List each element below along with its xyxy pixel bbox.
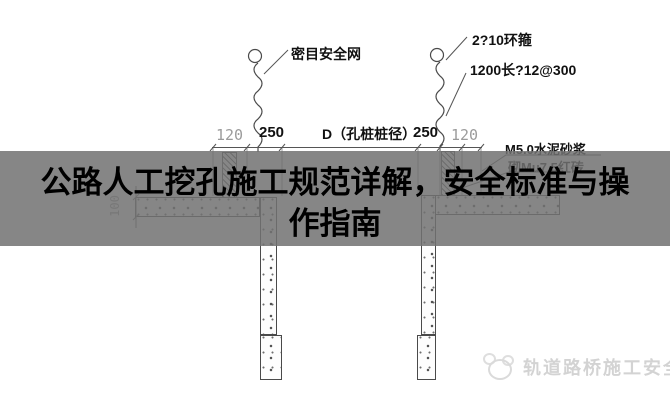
watermark: 轨道路桥施工安全: [481, 352, 670, 382]
hoop-circle-right: [431, 49, 444, 62]
label-rebar: 1200长?12@300: [470, 60, 576, 80]
logo-head: [488, 359, 512, 380]
label-ring-hoop: 2?10环箍: [472, 30, 532, 50]
label-safety-net: 密目安全网: [291, 44, 361, 64]
leader-rebar: [446, 73, 466, 116]
hoop-circle-left: [249, 50, 262, 63]
watermark-text: 轨道路桥施工安全: [523, 354, 670, 380]
dimension-250-right: 250: [413, 124, 438, 141]
watermark-logo-icon: [481, 352, 517, 382]
article-title-line-2: 作指南: [0, 203, 670, 244]
article-cover: 密目安全网 2?10环箍 1200长?12@300 M5.0水泥砂浆 砌Mu7.…: [0, 0, 670, 400]
dimension-250-left: 250: [259, 124, 284, 141]
label-pile-diameter: D（孔桩桩径）: [322, 124, 416, 144]
title-banner: 公路人工挖孔施工规范详解，安全标准与操 作指南: [0, 151, 670, 246]
article-title-line-1: 公路人工挖孔施工规范详解，安全标准与操: [0, 162, 670, 203]
dimension-120-right: 120: [451, 126, 478, 144]
dimension-line: [210, 144, 484, 151]
leader-ring-hoop: [446, 37, 467, 60]
dimension-120-left: 120: [216, 126, 243, 144]
leader-safety-net: [264, 50, 288, 74]
